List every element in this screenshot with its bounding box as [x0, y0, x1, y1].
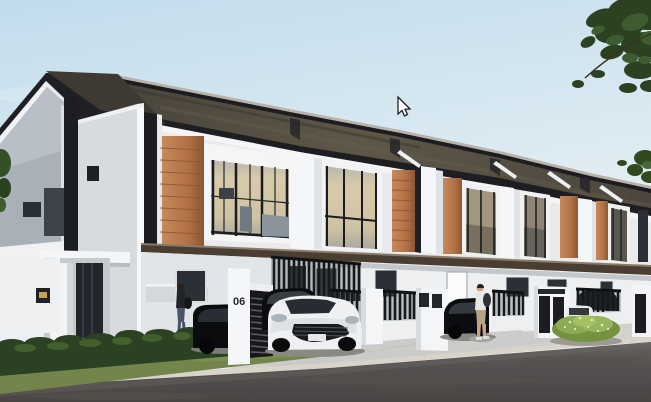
svg-text:06: 06 [233, 296, 245, 308]
